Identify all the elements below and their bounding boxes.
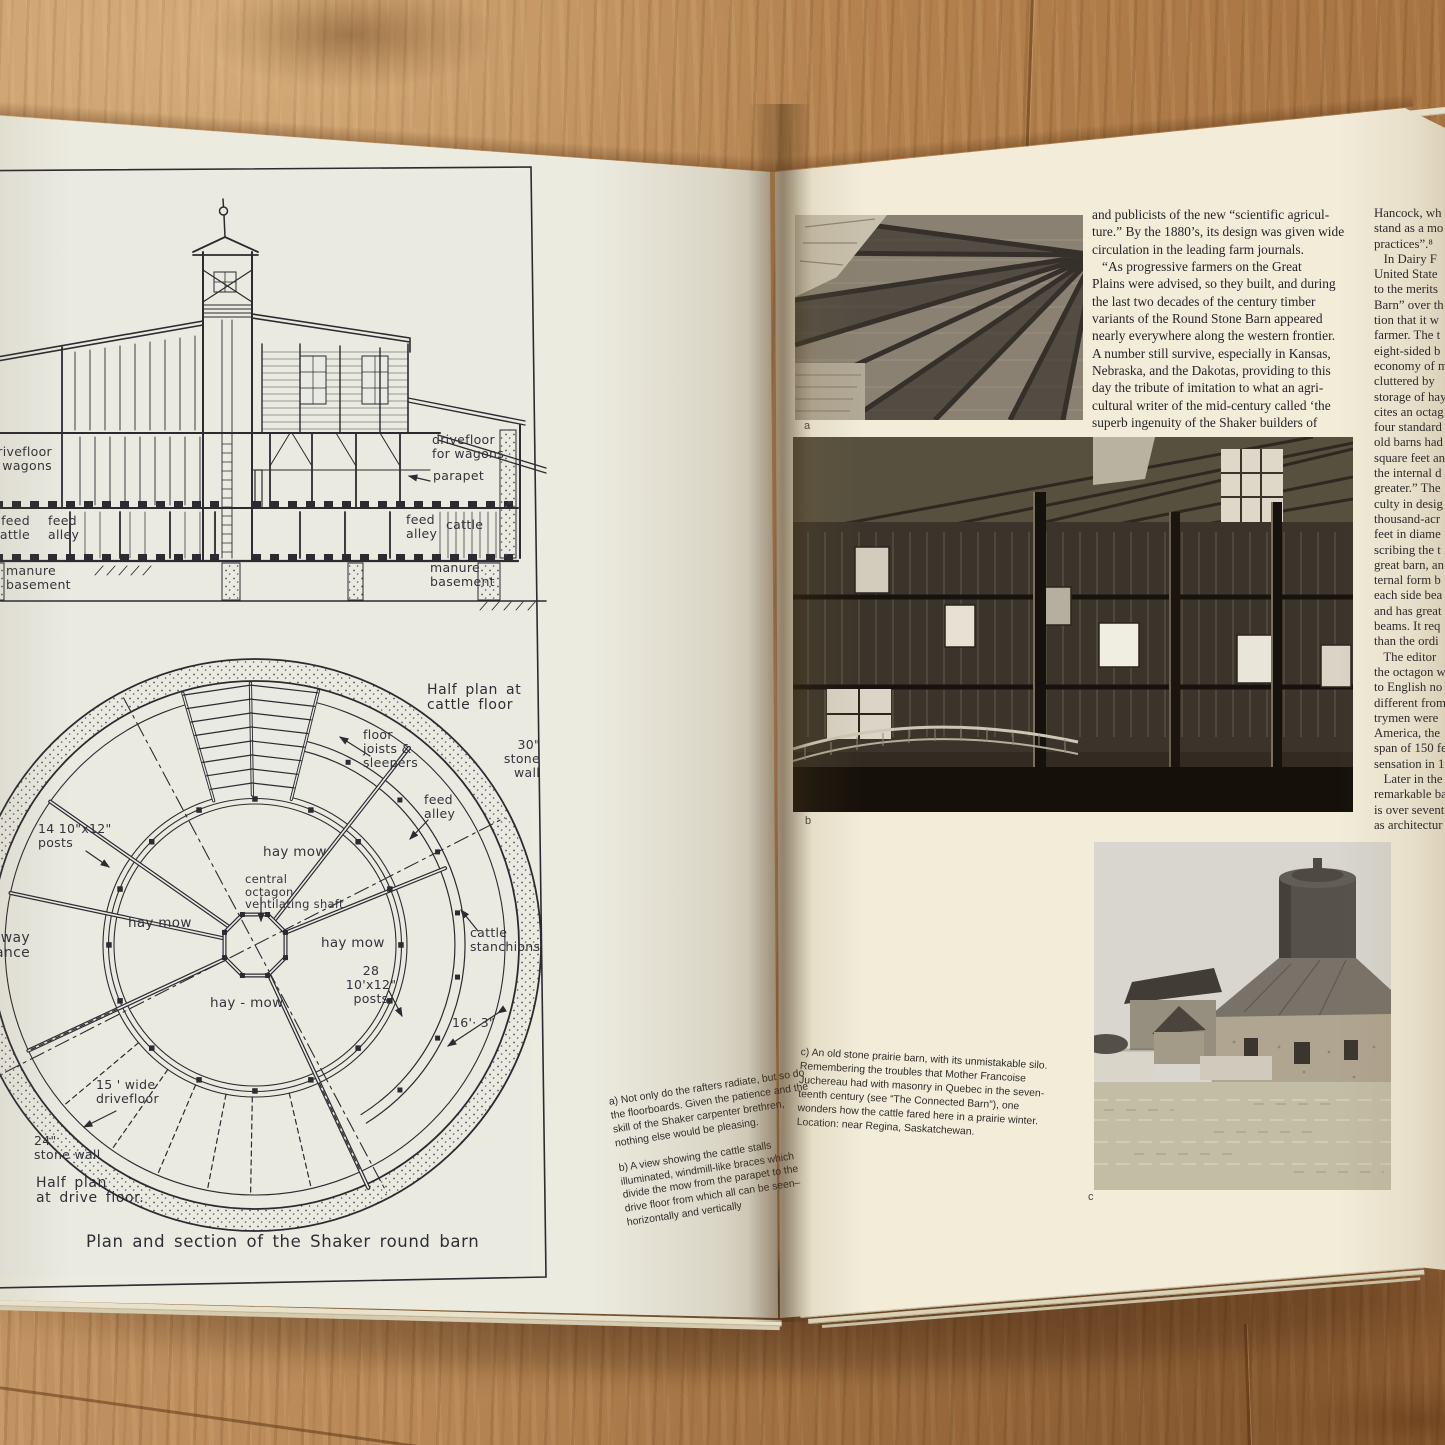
caption-b: b) A view showing the cattle stalls illu… [618, 1132, 826, 1230]
label-hay-mow-top: hay mow [263, 845, 327, 860]
photo-b-interior [793, 437, 1353, 812]
label-cattle-stanchions: cattle stanchions [470, 926, 540, 954]
label-floor-joists: floor joists & sleepers [363, 728, 418, 769]
label-drivefloor-right: drivefloor for wagons [432, 433, 504, 461]
caption-c: c) An old stone prairie barn, with its u… [796, 1046, 1100, 1146]
label-hay-mow-bottom: hay - mow [210, 996, 283, 1011]
label-half-plan-drive: Half plan at drive floor. [36, 1176, 144, 1207]
plank-seam [0, 1382, 435, 1445]
photo-of-open-book: drivefloor for wagons feed cattle feed a… [0, 0, 1445, 1445]
label-posts-14: 14 10"x12" posts [38, 822, 112, 850]
label-posts-28: 28 10'x12" posts [336, 964, 406, 1005]
label-hay-mow-right: hay mow [321, 936, 385, 951]
label-drivefloor-left: drivefloor for wagons [0, 445, 52, 473]
label-manure-basement-right: manure basement [430, 561, 495, 589]
photo-a-rafters [795, 215, 1083, 420]
label-half-plan-cattle: Half plan at cattle floor [427, 683, 521, 714]
photo-letter-c: c [1088, 1191, 1094, 1203]
wood-knot [1300, 1380, 1445, 1445]
label-feed-alley-right: feed alley [406, 513, 437, 541]
label-cattle: cattle [446, 518, 483, 532]
label-manure-basement-left: manure basement [6, 564, 71, 592]
label-feed-cattle-left: feed cattle [0, 514, 30, 542]
grass [1094, 1082, 1391, 1190]
label-drivefloor-15: 15 ' wide drivefloor [96, 1078, 159, 1106]
floor [793, 767, 1353, 812]
captions-a-b: a) Not only do the rafters radiate, but … [608, 1066, 828, 1241]
label-entrance-fragment: way ance [0, 931, 30, 962]
drawing-title: Plan and section of the Shaker round bar… [86, 1233, 526, 1251]
label-stone-wall-24: 24" stone wall [34, 1134, 100, 1162]
label-hay-mow-left: hay mow [128, 916, 192, 931]
photo-letter-b: b [805, 815, 811, 827]
photo-c-prairie-barn [1094, 842, 1391, 1190]
body-text-column-1: and publicists of the new “scientific ag… [1092, 206, 1368, 431]
label-feed-alley-plan: feed alley [424, 793, 455, 821]
label-dim-16-3: 16'· 3" [452, 1016, 495, 1030]
label-parapet: parapet [433, 469, 484, 483]
label-central-shaft: central octagon ventilating shaft [245, 873, 344, 911]
label-stone-wall-30: 30" stone wall [482, 738, 540, 779]
body-text-column-2: Hancock, whstand as a mopractices”.⁸ In … [1374, 206, 1445, 833]
label-feed-alley-left: feed alley [48, 514, 79, 542]
photo-letter-a: a [804, 420, 810, 432]
